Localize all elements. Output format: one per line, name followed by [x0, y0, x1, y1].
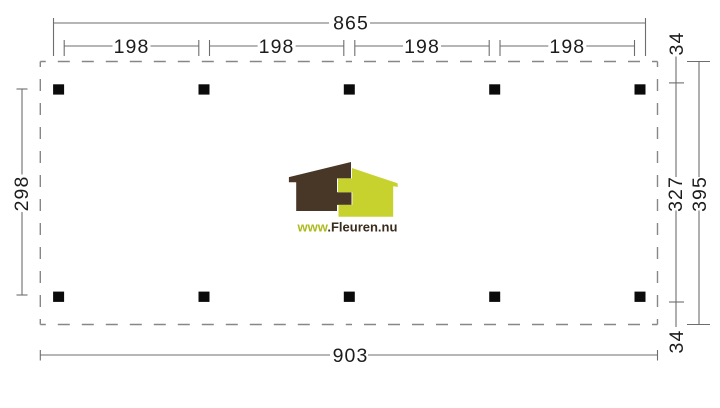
svg-text:903: 903 — [333, 345, 369, 367]
svg-text:www.Fleuren.nu: www.Fleuren.nu — [297, 220, 398, 235]
svg-text:327: 327 — [665, 176, 687, 212]
svg-text:198: 198 — [404, 36, 440, 58]
svg-text:395: 395 — [689, 176, 711, 212]
svg-text:865: 865 — [333, 13, 369, 35]
svg-text:34: 34 — [666, 32, 688, 56]
svg-text:198: 198 — [114, 36, 150, 58]
svg-text:198: 198 — [259, 36, 295, 58]
svg-text:34: 34 — [666, 330, 688, 354]
svg-text:198: 198 — [549, 36, 585, 58]
svg-text:298: 298 — [11, 176, 33, 212]
